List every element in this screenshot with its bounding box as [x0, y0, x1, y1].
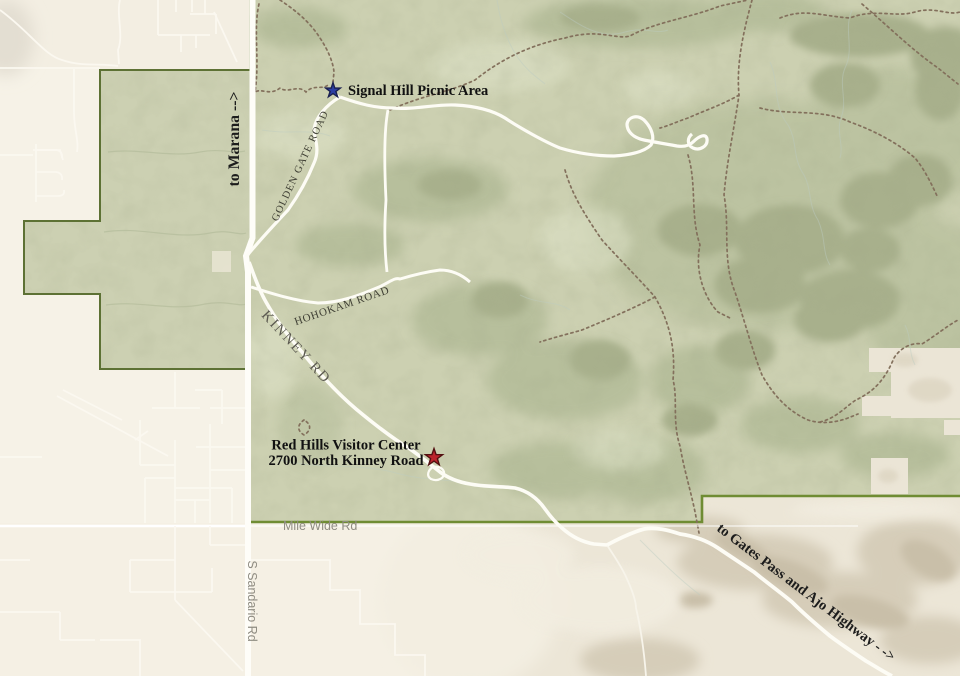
svg-text:Red Hills Visitor Center: Red Hills Visitor Center: [271, 438, 421, 454]
svg-text:to Marana -->: to Marana -->: [226, 92, 243, 187]
svg-text:Mile Wide Rd: Mile Wide Rd: [283, 519, 357, 533]
svg-text:2700 North Kinney Road: 2700 North Kinney Road: [268, 453, 423, 469]
svg-text:S Sandario Rd: S Sandario Rd: [245, 560, 259, 641]
svg-text:Signal Hill Picnic Area: Signal Hill Picnic Area: [348, 83, 489, 99]
